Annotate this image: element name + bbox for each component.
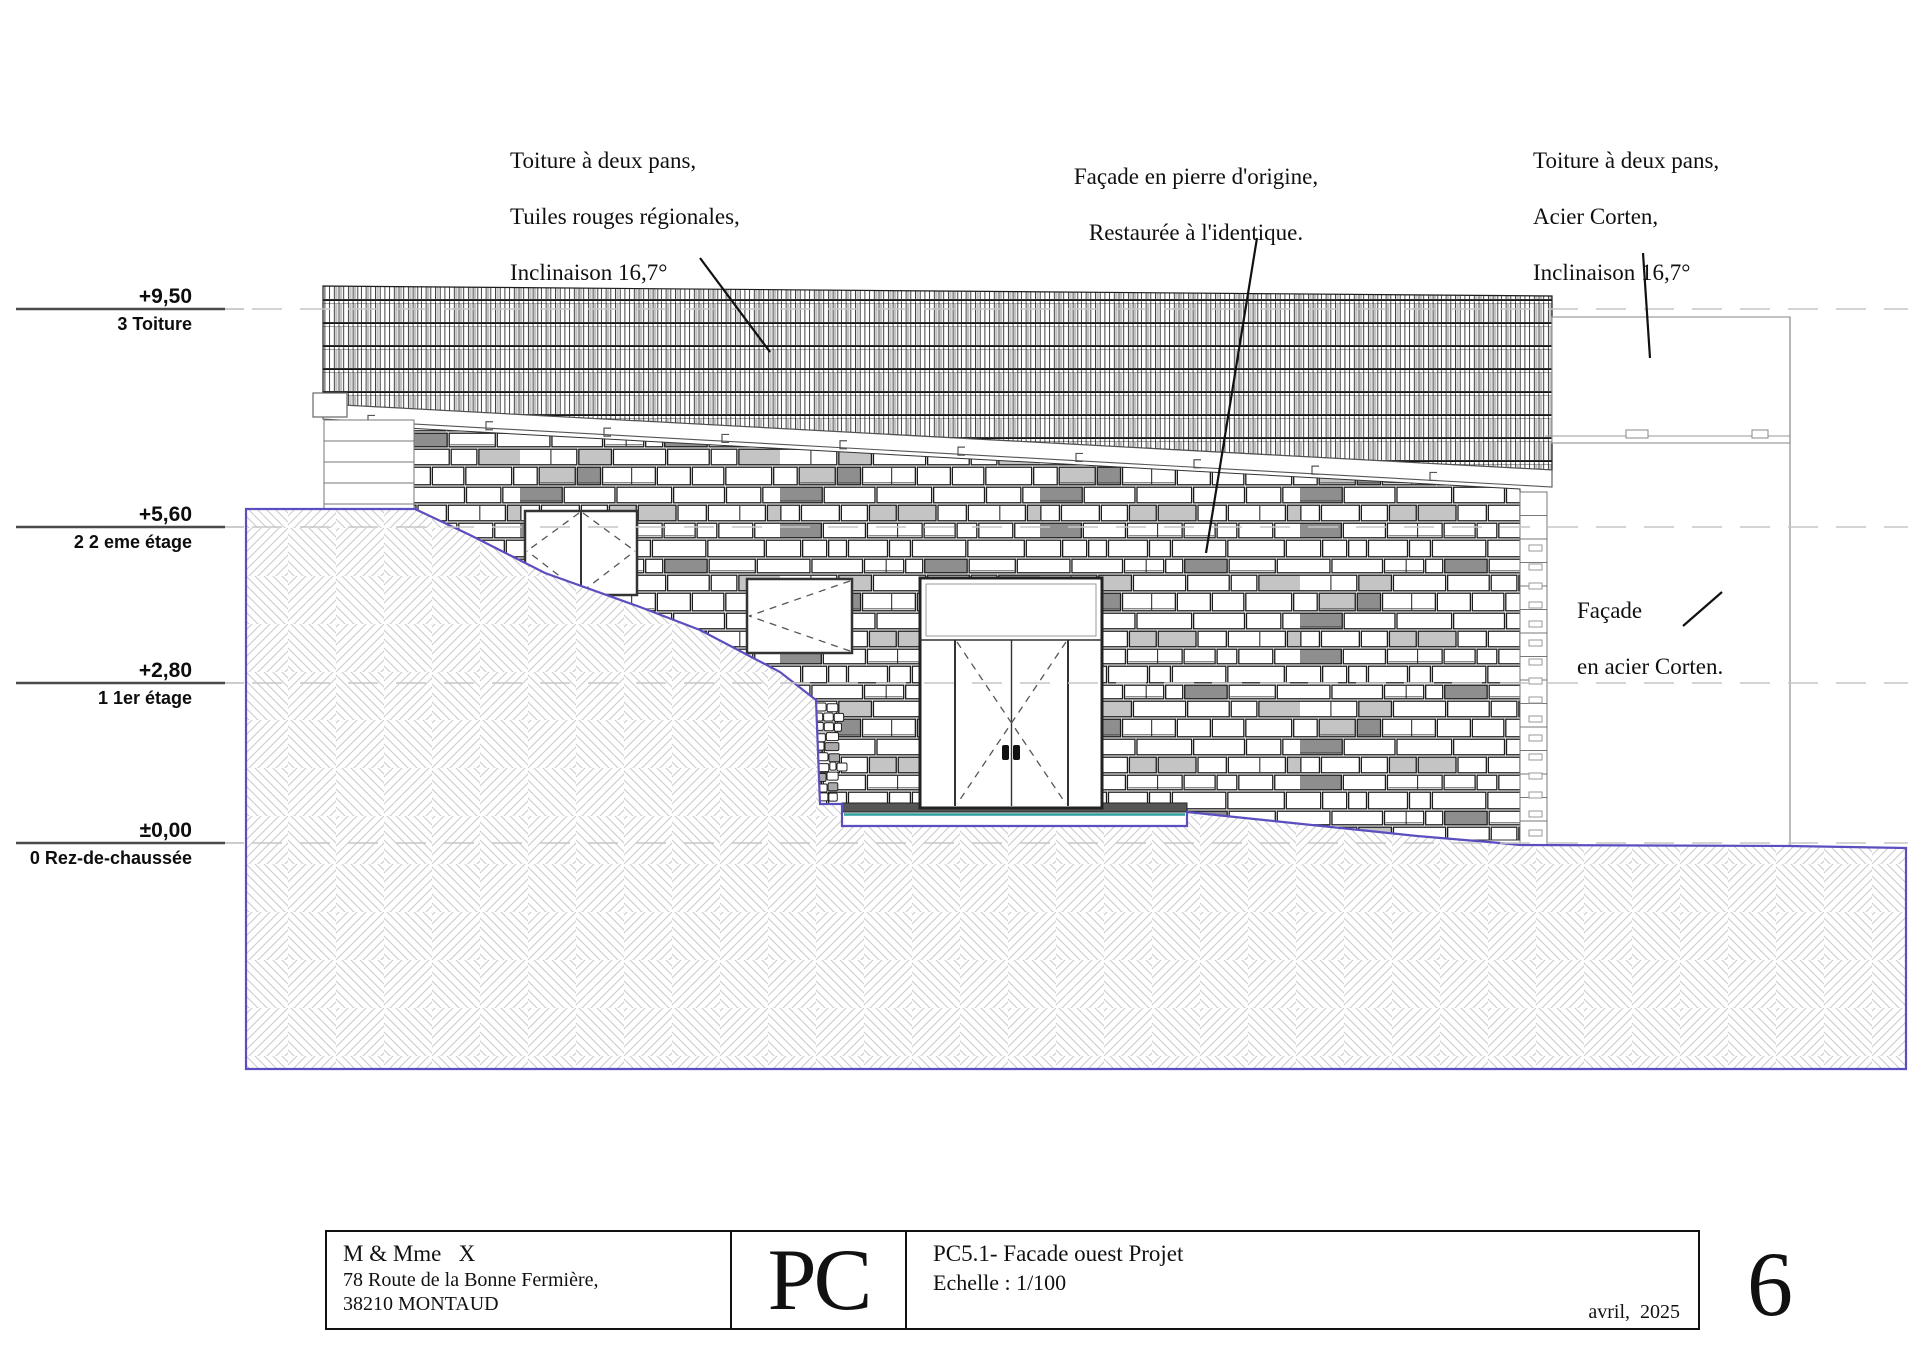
title-block-client-cell: M & Mme X 78 Route de la Bonne Fermière,… bbox=[327, 1232, 730, 1328]
annotation-roof-right: Toiture à deux pans, Acier Corten, Incli… bbox=[1533, 147, 1719, 287]
title-block-logo-cell: PC bbox=[730, 1232, 907, 1328]
level-label-2eme: 2 2 eme étage bbox=[0, 531, 192, 553]
client-address2: 38210 MONTAUD bbox=[343, 1292, 730, 1316]
annotation-roof-left: Toiture à deux pans, Tuiles rouges régio… bbox=[510, 147, 740, 287]
sheet-title: PC5.1- Facade ouest Projet bbox=[933, 1240, 1698, 1268]
level-label-1er: 1 1er étage bbox=[0, 687, 192, 709]
facade-elevation-sheet: +9,50 3 Toiture +5,60 2 2 eme étage +2,8… bbox=[0, 0, 1920, 1357]
level-value-1er: +2,80 bbox=[0, 659, 192, 683]
client-address1: 78 Route de la Bonne Fermière, bbox=[343, 1268, 730, 1292]
corten-extension bbox=[1545, 317, 1790, 846]
level-value-rdc: ±0,00 bbox=[0, 819, 192, 843]
sheet-scale: Echelle : 1/100 bbox=[933, 1270, 1698, 1296]
level-value-2eme: +5,60 bbox=[0, 503, 192, 527]
title-block-title-cell: PC5.1- Facade ouest Projet Echelle : 1/1… bbox=[907, 1232, 1698, 1328]
title-block: M & Mme X 78 Route de la Bonne Fermière,… bbox=[325, 1230, 1700, 1330]
level-value-toiture: +9,50 bbox=[0, 285, 192, 309]
page-number: 6 bbox=[1732, 1238, 1808, 1330]
level-label-toiture: 3 Toiture bbox=[0, 313, 192, 335]
level-label-rdc: 0 Rez-de-chaussée bbox=[0, 847, 192, 869]
client-name: M & Mme X bbox=[343, 1240, 730, 1268]
pc-logo: PC bbox=[768, 1237, 870, 1325]
annotation-corten-facade: Façade en acier Corten. bbox=[1577, 597, 1723, 681]
annotation-stone-facade: Façade en pierre d'origine, Restaurée à … bbox=[1040, 163, 1352, 247]
sheet-date: avril, 2025 bbox=[1588, 1301, 1680, 1324]
